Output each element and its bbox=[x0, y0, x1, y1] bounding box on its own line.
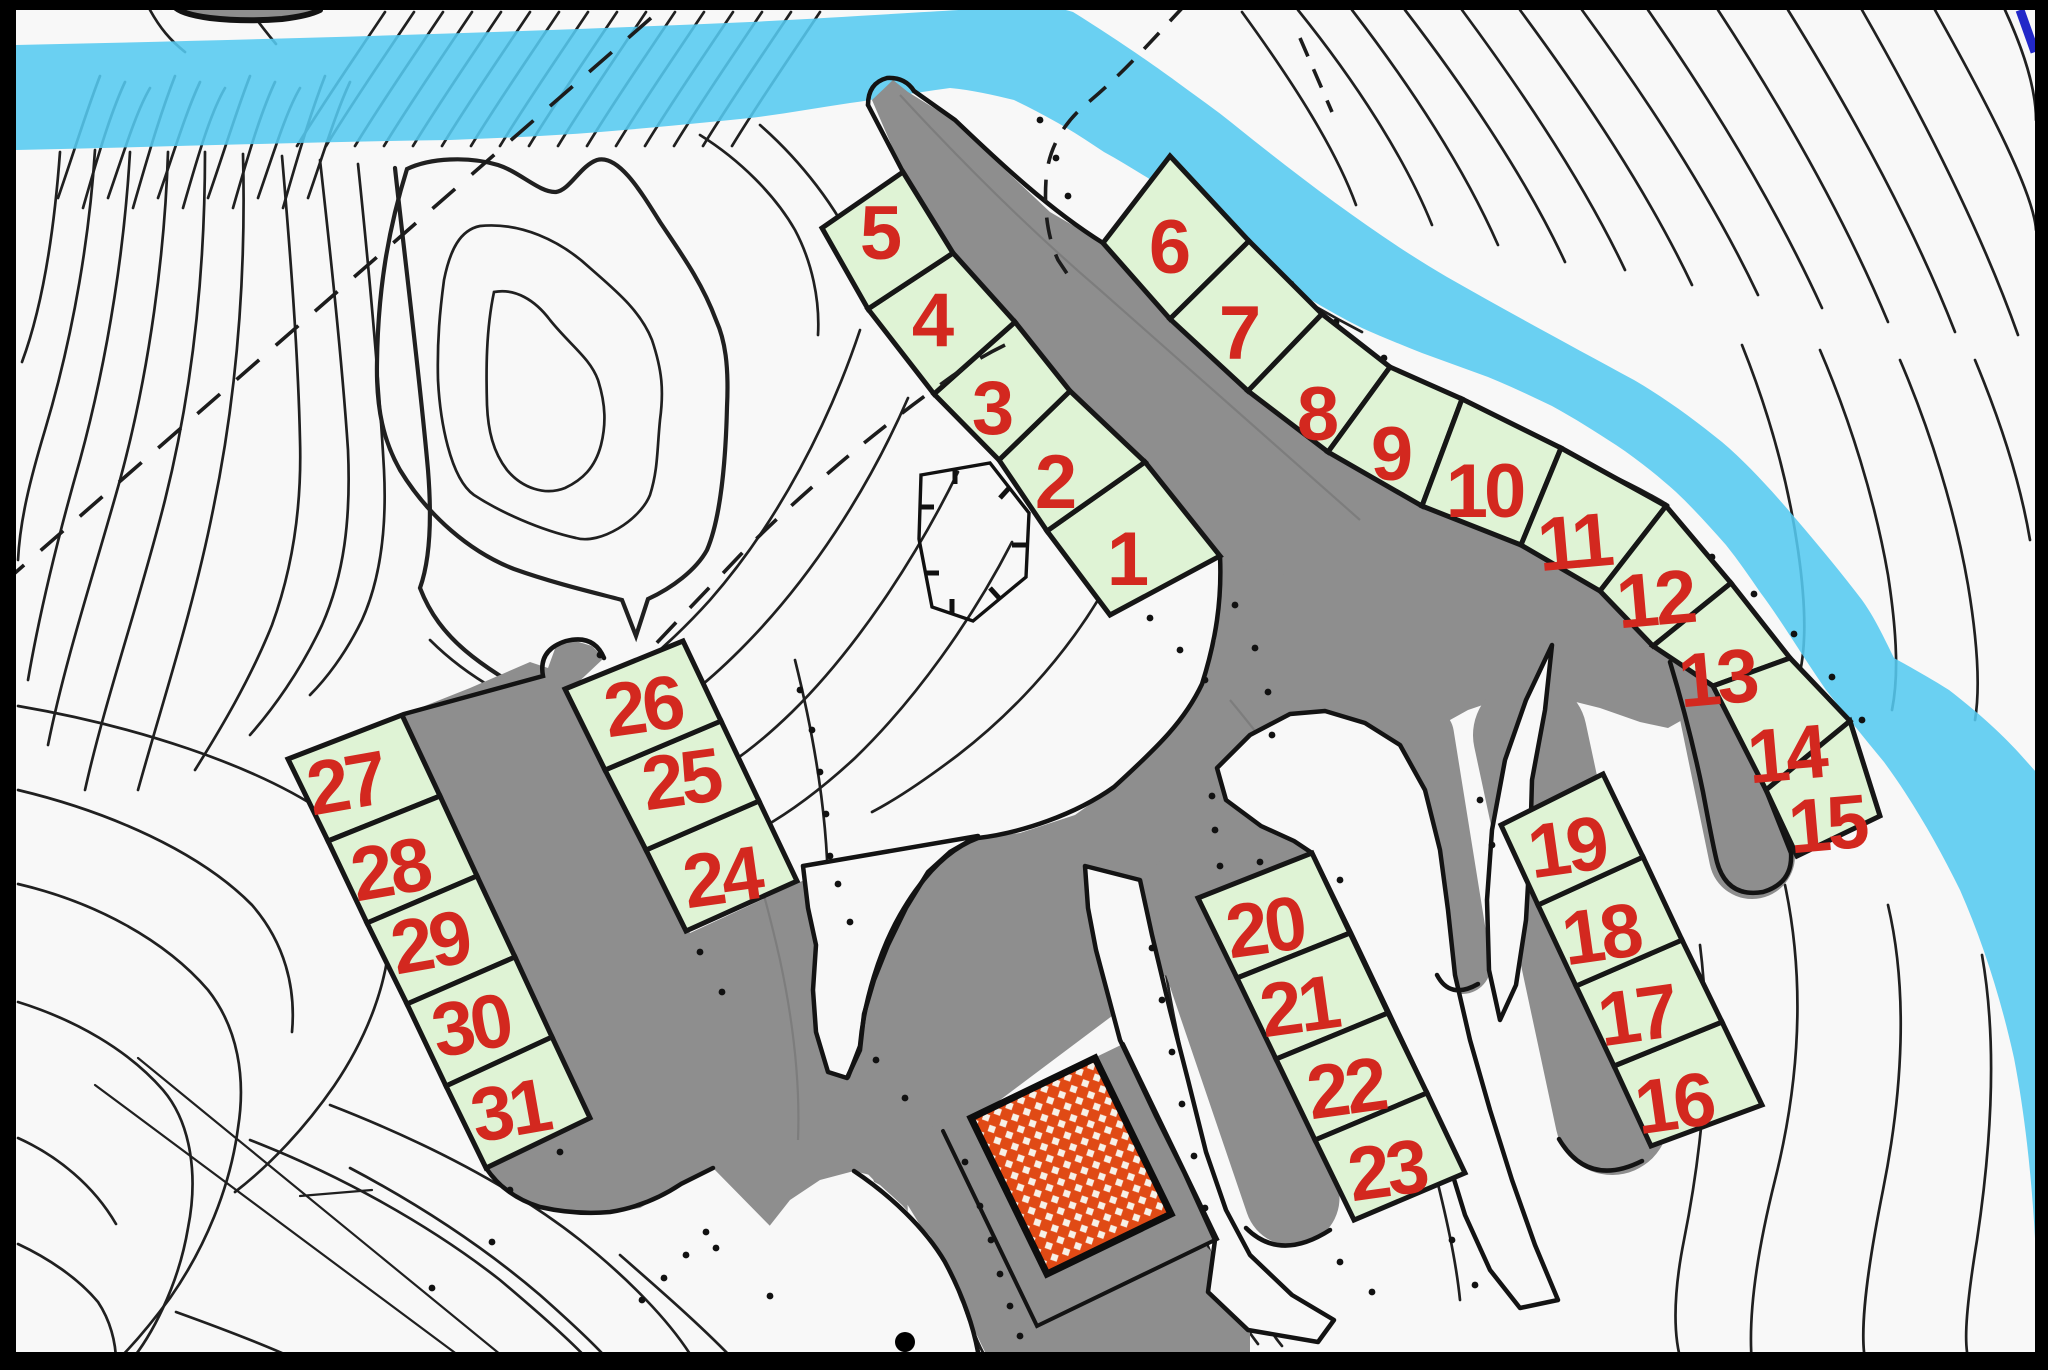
svg-text:22: 22 bbox=[1302, 1041, 1391, 1136]
svg-text:3: 3 bbox=[972, 366, 1014, 451]
svg-text:13: 13 bbox=[1675, 633, 1760, 724]
svg-text:6: 6 bbox=[1149, 205, 1191, 290]
svg-text:5: 5 bbox=[860, 191, 902, 276]
svg-text:4: 4 bbox=[912, 278, 954, 363]
svg-text:18: 18 bbox=[1557, 887, 1646, 982]
svg-text:11: 11 bbox=[1534, 497, 1616, 588]
svg-text:24: 24 bbox=[678, 830, 769, 925]
svg-text:19: 19 bbox=[1523, 800, 1612, 895]
svg-text:26: 26 bbox=[599, 659, 688, 754]
svg-text:27: 27 bbox=[300, 735, 391, 832]
svg-text:23: 23 bbox=[1343, 1123, 1432, 1218]
svg-text:9: 9 bbox=[1371, 412, 1413, 497]
svg-text:1: 1 bbox=[1107, 517, 1149, 602]
svg-text:17: 17 bbox=[1593, 968, 1681, 1063]
svg-text:20: 20 bbox=[1221, 880, 1310, 975]
svg-text:21: 21 bbox=[1255, 959, 1345, 1054]
svg-text:15: 15 bbox=[1785, 779, 1871, 871]
svg-text:7: 7 bbox=[1219, 291, 1261, 376]
svg-text:2: 2 bbox=[1035, 440, 1077, 525]
svg-text:12: 12 bbox=[1613, 554, 1698, 645]
svg-text:10: 10 bbox=[1446, 449, 1524, 534]
svg-text:8: 8 bbox=[1297, 372, 1339, 457]
svg-text:16: 16 bbox=[1630, 1056, 1719, 1151]
